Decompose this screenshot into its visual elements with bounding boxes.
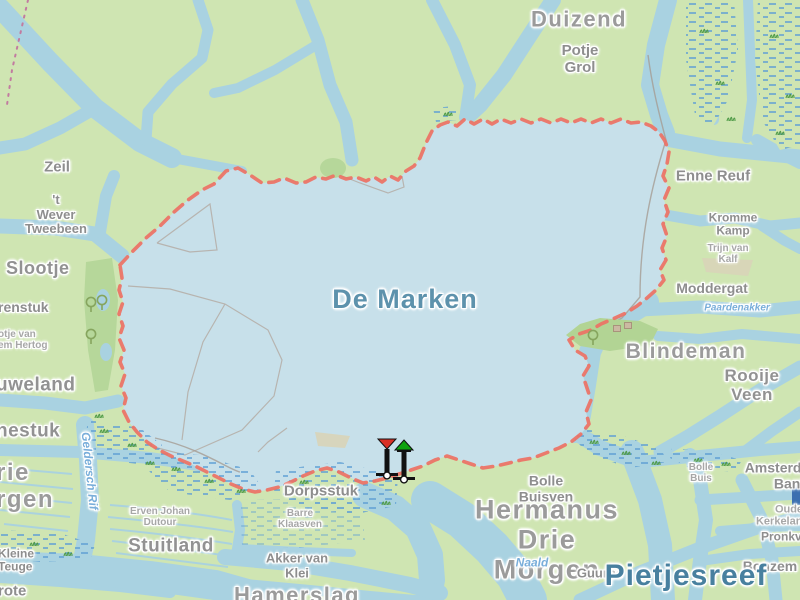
map-canvas[interactable] [0,0,800,600]
map-viewport[interactable]: DuizendPotje GrolZeil't Wever TweebeenSl… [0,0,800,600]
